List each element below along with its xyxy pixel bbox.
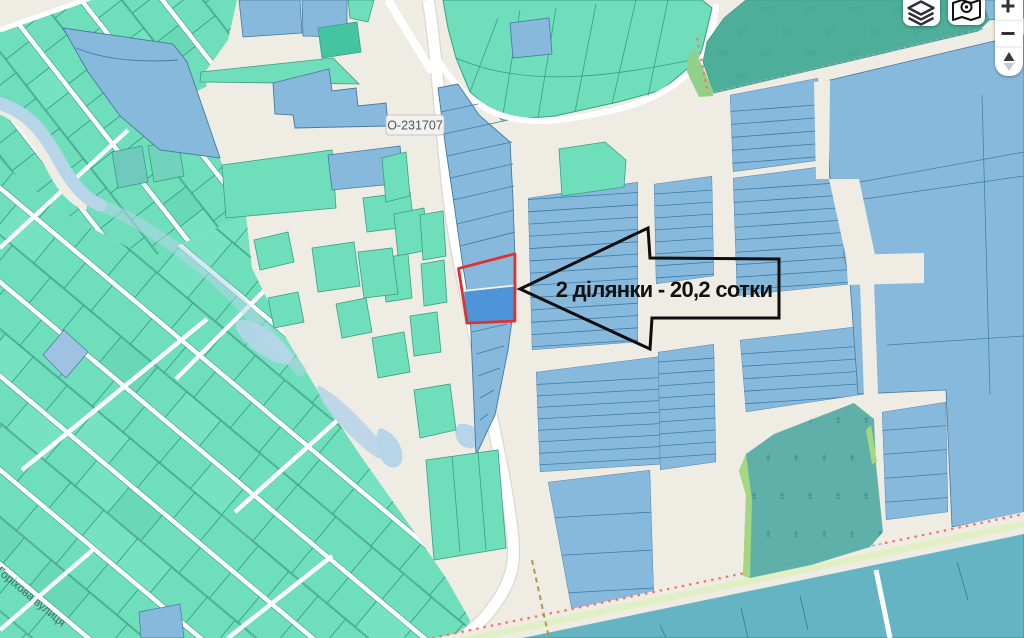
svg-text:2 ділянки - 20,2 сотки: 2 ділянки - 20,2 сотки [556, 277, 773, 302]
svg-text:О-231707: О-231707 [387, 119, 443, 133]
